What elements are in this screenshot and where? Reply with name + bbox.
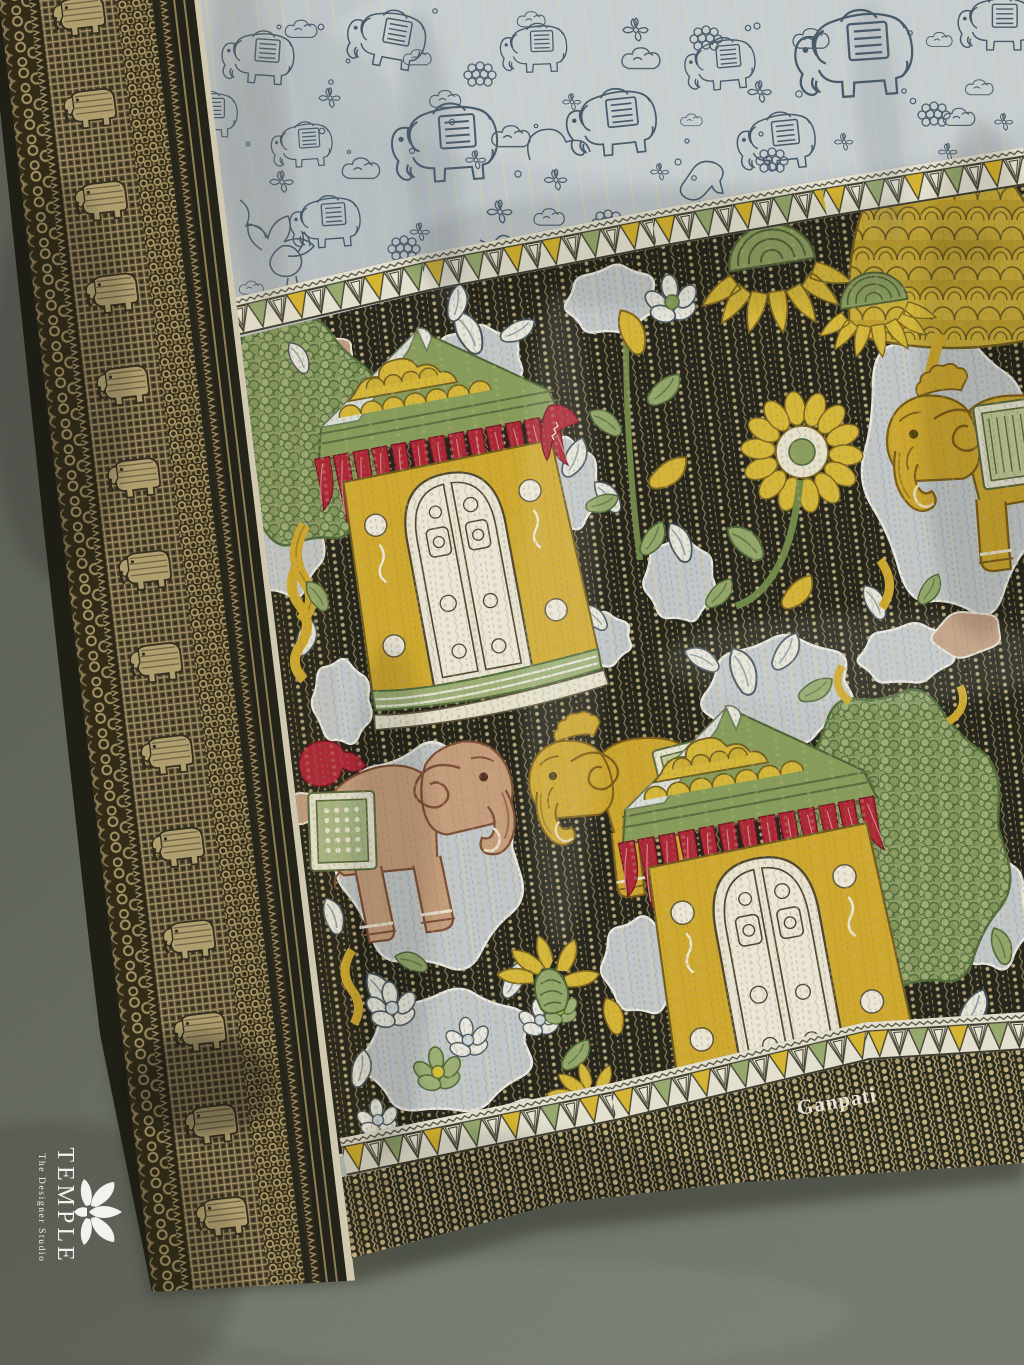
svg-text:TEMPLE: TEMPLE <box>52 1147 78 1264</box>
svg-text:The Designer Studio: The Designer Studio <box>36 1153 46 1262</box>
